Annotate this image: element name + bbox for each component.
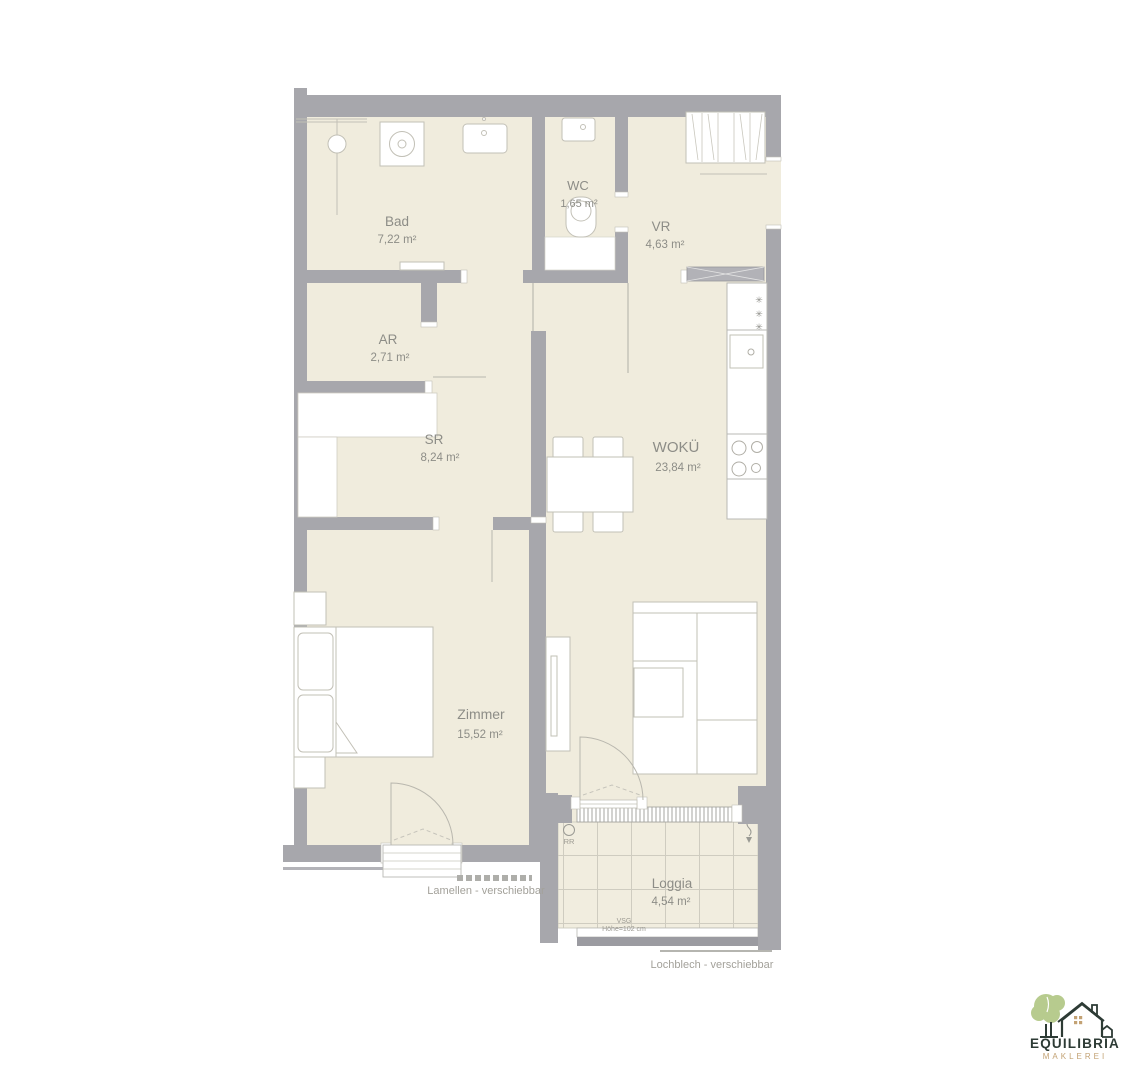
room-area-bad: 7,22 m² (378, 234, 417, 246)
room-label-woku: WOKÜ (653, 438, 700, 456)
freezer-star-icon: ✳ (755, 309, 763, 319)
floor-plan: ✳ ✳ ✳ (0, 0, 1124, 1080)
room-area-loggia: 4,54 m² (652, 896, 691, 908)
logo-window-dots (1074, 1016, 1082, 1024)
freezer-star-icon: ✳ (755, 295, 763, 305)
floor-plan-page: ✳ ✳ ✳ (0, 0, 1124, 1080)
room-area-zimmer: 15,52 m² (457, 729, 503, 741)
equilibria-logo: EQUILIBRIA MAKLEREI (1030, 994, 1120, 1061)
ottoman (634, 668, 683, 717)
pillow (298, 695, 333, 752)
logo-house-icon (1058, 1003, 1112, 1037)
shower-head-icon (328, 135, 346, 153)
lamellen-label: Lamellen - verschiebbar (427, 885, 545, 897)
logo-tree-icon (1031, 994, 1065, 1037)
kitchen-sink (730, 335, 763, 368)
wc-sink (562, 118, 595, 141)
tv-board (546, 637, 570, 751)
room-area-sr: 8,24 m² (421, 452, 460, 464)
nightstand (294, 592, 326, 625)
freezer-star-icon: ✳ (755, 322, 763, 332)
loggia-rail (577, 937, 758, 946)
shaft (545, 237, 615, 270)
radiator (400, 262, 444, 270)
room-area-ar: 2,71 m² (371, 352, 410, 364)
nightstand (294, 757, 325, 788)
sofa (633, 602, 757, 774)
room-label-ar: AR (379, 332, 398, 347)
room-label-wc: WC (567, 178, 589, 193)
room-label-sr: SR (425, 432, 444, 447)
logo-title: EQUILIBRIA (1030, 1036, 1120, 1051)
room-label-zimmer: Zimmer (457, 706, 505, 722)
room-label-loggia: Loggia (652, 876, 693, 891)
bathroom-sink (463, 124, 507, 153)
sideboard (687, 267, 764, 281)
room-area-woku: 23,84 m² (655, 462, 701, 474)
room-label-vr: VR (652, 219, 671, 234)
vsg-label: VSG (617, 918, 632, 925)
rr-label: RR (564, 837, 575, 846)
dining-table (547, 457, 633, 512)
room-area-vr: 4,63 m² (646, 239, 685, 251)
lochblech-panel (660, 950, 772, 952)
logo-subtitle: MAKLEREI (1043, 1052, 1107, 1061)
room-label-bad: Bad (385, 214, 409, 229)
entrance-opening (766, 161, 781, 226)
freezer-symbols: ✳ ✳ ✳ (755, 295, 763, 332)
pillow (298, 633, 333, 690)
room-area-wc: 1,65 m² (560, 198, 598, 210)
lochblech-label: Lochblech - verschiebbar (651, 959, 774, 971)
loggia-door-threshold (580, 800, 637, 808)
vsg-height-label: Höhe=102 cm (602, 926, 646, 933)
